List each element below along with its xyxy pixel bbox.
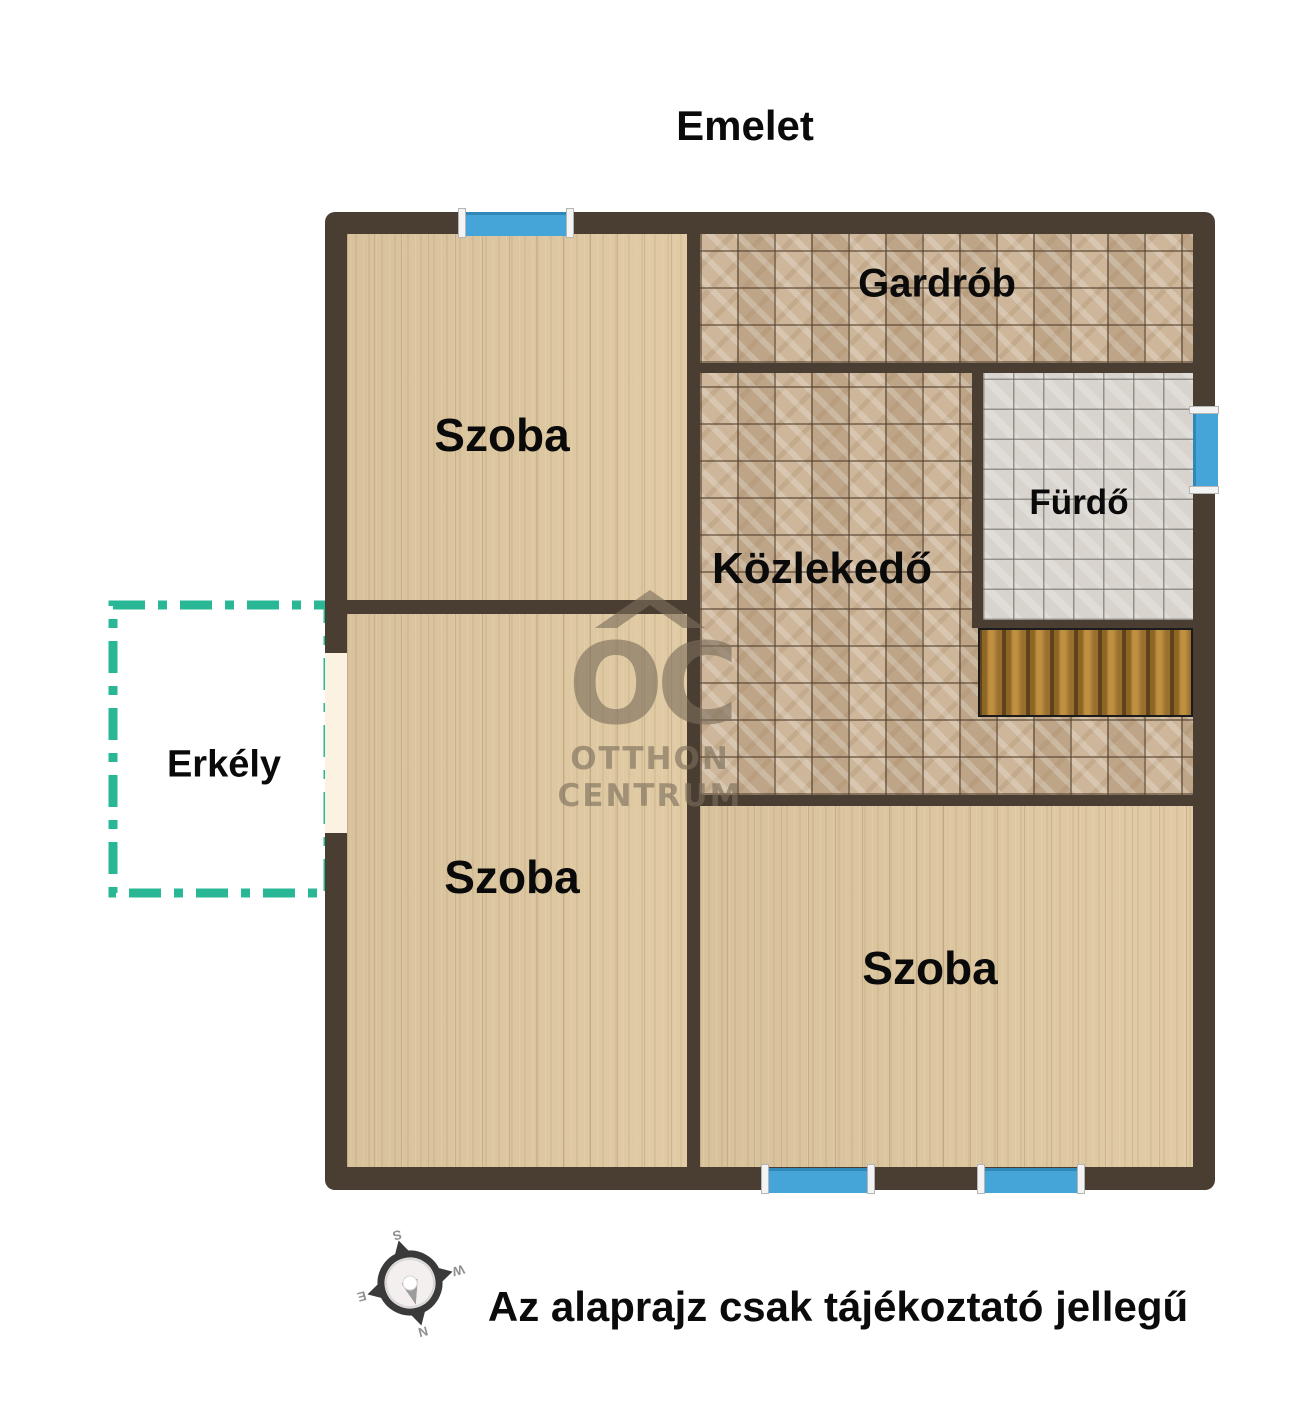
label-szoba-bottom-right: Szoba [862, 941, 997, 995]
window-bottom-left [768, 1168, 868, 1193]
page-title: Emelet [676, 102, 814, 150]
compass-letter-east: E [355, 1288, 368, 1305]
window-bottom-right-cap-right [1077, 1164, 1085, 1194]
window-right-cap-top [1189, 406, 1219, 414]
window-bottom-right [984, 1168, 1078, 1193]
disclaimer-text: Az alaprajz csak tájékoztató jellegű [488, 1283, 1188, 1331]
window-right [1193, 413, 1218, 487]
label-furdo: Fürdő [1029, 483, 1128, 523]
window-bottom-left-cap-right [867, 1164, 875, 1194]
window-top-cap-left [458, 208, 466, 238]
wall-below-gardrob [700, 363, 1193, 373]
label-erkely: Erkély [167, 744, 281, 787]
wall-above-szoba-bottom-right [700, 795, 1193, 806]
label-kozlekedo: Közlekedő [712, 544, 932, 594]
balcony-door-opening [325, 653, 347, 833]
compass-letter-north: N [417, 1323, 430, 1340]
label-gardrob: Gardrób [858, 262, 1016, 307]
compass-letter-south: S [391, 1227, 404, 1244]
label-szoba-top-left: Szoba [434, 408, 569, 462]
wall-furdo-bottom [972, 620, 1193, 628]
wall-furdo-left [972, 363, 983, 628]
window-top [465, 212, 567, 236]
window-top-cap-right [566, 208, 574, 238]
window-right-cap-bottom [1189, 486, 1219, 494]
label-szoba-bottom-left: Szoba [444, 850, 579, 904]
stairs [978, 628, 1193, 717]
window-bottom-right-cap-left [977, 1164, 985, 1194]
window-bottom-left-cap-left [761, 1164, 769, 1194]
floor-plan [325, 212, 1215, 1190]
compass-icon: N E S W [352, 1225, 468, 1341]
compass-letter-west: W [450, 1262, 466, 1280]
